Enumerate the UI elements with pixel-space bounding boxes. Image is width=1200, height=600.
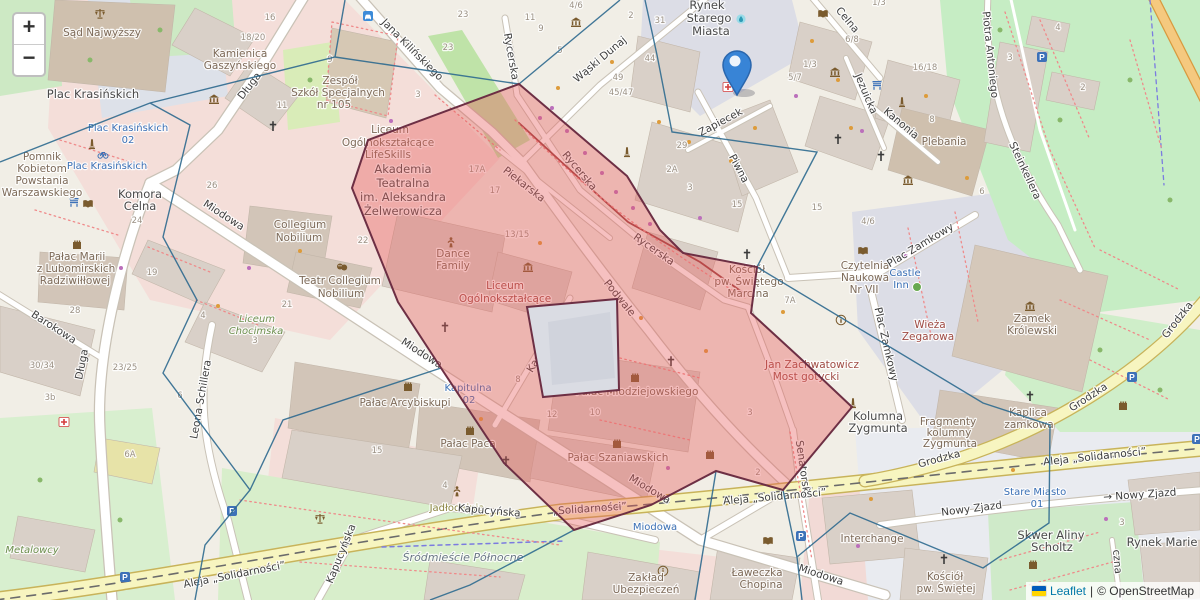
map-label: Zespół [322,75,357,87]
map-label: 15 [372,446,383,456]
map-label: Radziwiłłowej [40,275,110,287]
zone-notch [527,299,619,397]
map-label: 4 [1055,23,1060,33]
map-label: Pałac Marii [49,251,105,263]
map-label: Liceum [239,314,275,325]
attribution-bar: Leaflet | © OpenStreetMap [1026,582,1200,600]
pharmacy-icon [59,418,69,427]
map-label: Wieża [914,319,945,331]
leaflet-link[interactable]: Leaflet [1050,584,1086,598]
map-label: Zygmunta [923,438,977,450]
map-label: Nr VII [850,284,879,296]
map-label: 7A [784,296,795,306]
map-label: Sąd Najwyższy [63,27,141,39]
map-label: z Lubomirskich [37,263,116,275]
map-label: 8 [929,115,934,125]
map-label: Kobietom [17,163,67,175]
map-label: 9 [327,55,332,65]
map-label: czna [1110,549,1124,574]
map-label: 15 [732,200,743,210]
map-label: Rynek Marie [1127,535,1198,549]
zoom-in-button[interactable]: + [14,14,44,45]
map-label: 1/3 [872,0,886,8]
map-label: 02 [122,135,135,146]
parking-icon [1192,434,1200,444]
map-label: Zakład [628,572,664,584]
map-label: Zegarowa [902,331,954,343]
map-label: Zygmunta [848,421,907,435]
map-label: Powstania [16,175,69,187]
map-label: Naukowa [841,272,889,284]
map-label: 6 [979,187,984,197]
map-label: Stare Miasto [1004,487,1066,498]
map-label: 16 [265,13,276,23]
map-label: 23 [443,43,454,53]
map-label: 23 [458,10,469,20]
map-label: 2 [1080,83,1085,93]
map-tiles: P [0,0,1200,600]
map-label: Castle [889,268,920,279]
map-label: 49 [613,73,624,83]
map-label: 18/20 [241,33,266,43]
map-label: 26 [207,181,218,191]
map-label: Pomnik [23,151,62,163]
map-label: 29 [677,141,688,151]
map-label: Celna [124,199,157,213]
map-label: 01 [1031,499,1044,510]
map-label: Zamek [1014,313,1051,325]
parking-icon [120,572,130,582]
map-label: Warszawskiego [2,187,82,199]
map-label: Czytelnia [841,260,890,272]
map-label: 21 [282,300,293,310]
map-label: Plac Krasińskich [88,122,168,134]
parking-icon [1037,52,1047,62]
map-label: Teatr Collegium [298,275,381,287]
map-label: Plac Krasińskich [47,87,139,101]
map-label: 3 [252,336,257,346]
map-label: 3b [45,393,56,403]
book-icon [818,10,828,17]
map-label: Pałac Paca [440,438,495,450]
map-label: Ławeczka [731,567,783,579]
book-icon [83,200,93,207]
map-label: Miasta [692,24,730,38]
map-label: Interchange [840,533,903,545]
ukraine-flag-icon [1032,586,1046,596]
map-label: 28 [70,306,81,316]
map-label: 31 [655,16,666,26]
map-label: 19 [147,268,158,278]
map-label: 5/7 [788,73,802,83]
map-label: 23/25 [113,363,138,373]
map-label: 3 [1119,518,1124,528]
map-label: Kamienica [213,48,268,60]
book-icon [858,247,868,254]
map-label: 24 [132,216,143,226]
map-label: pw. Świętej [916,582,975,595]
map-label: 3 [1007,53,1012,63]
map-label: 4 [200,311,205,321]
map-label: Starego [687,11,732,25]
osm-attribution[interactable]: © OpenStreetMap [1097,584,1194,598]
map-label: 44 [645,54,656,64]
map-label: Pałac Arcybiskupi [359,397,450,409]
map-label: 11 [277,101,288,111]
map-label: 6A [124,450,135,460]
map-label: nr 105 [317,99,351,111]
map-label: Scholtz [1031,540,1073,554]
castle-icon [466,427,474,436]
map-label: 45/47 [609,88,634,98]
map-label: Królewski [1007,325,1057,337]
castle-icon [404,383,412,392]
map-label: 3 [415,90,420,100]
map-label: Collegium [274,219,327,231]
fountain-icon [736,14,745,23]
map-label: Plac Krasińskich [67,160,147,172]
map-label: 6/8 [845,35,859,45]
taxi-icon [363,11,373,21]
map-label: Chopina [739,579,782,591]
parking-icon [796,531,806,541]
attribution-separator: | [1090,584,1093,598]
map-label: 3 [687,183,692,193]
map-label: 1/3 [803,60,817,70]
map-label: Ubezpieczeń [613,584,680,596]
map-label: 22 [358,236,369,246]
map-label: 2A [666,165,677,175]
map-label: 9 [538,24,543,34]
zoom-control: + − [12,12,46,77]
map-label: Metalowcy [5,545,59,556]
map-label: 2 [628,11,633,21]
map-label: Kościół [927,571,963,583]
map-label: Śródmieście Północne [403,551,524,564]
map-label: Plebania [922,136,967,148]
map-label: 30/34 [30,361,55,371]
hotel-icon [913,283,922,292]
map-label: 4 [442,481,447,491]
zoom-out-button[interactable]: − [14,45,44,75]
map-label: Gaszyńskiego [204,60,276,72]
map-label: 15 [812,203,823,213]
map-label: Nobilium [318,288,365,300]
map-label: Nobilium [276,232,323,244]
map-label: 11 [525,13,536,23]
map-label: Szkół Specjalnych [291,87,385,99]
map-canvas[interactable]: P [0,0,1200,600]
map-label: zamkowa [1004,419,1053,431]
map-label: 16/18 [913,63,938,73]
map-label: 4/6 [569,1,583,11]
book-icon [763,537,773,544]
map-label: Miodowa [633,522,677,533]
map-label: 4/6 [861,217,875,227]
parking-icon [1127,372,1137,382]
map-label: Inn [893,280,909,291]
